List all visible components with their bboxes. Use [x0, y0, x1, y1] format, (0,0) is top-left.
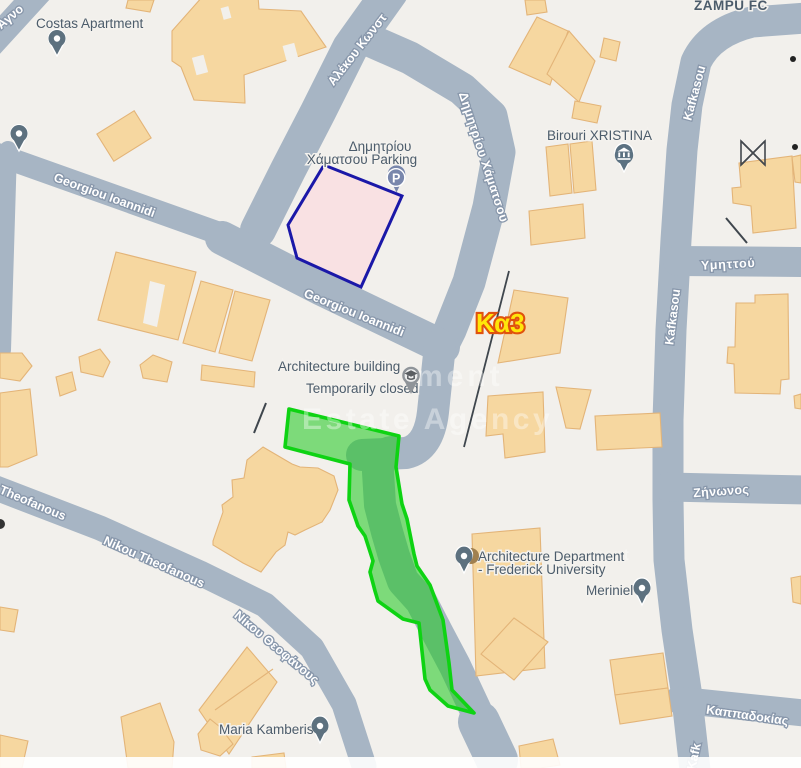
svg-text:ment: ment — [416, 360, 504, 393]
svg-text:ZAMPU FC: ZAMPU FC — [694, 0, 768, 13]
svg-text:Κα3: Κα3 — [476, 308, 525, 338]
svg-text:Architecture building: Architecture building — [278, 359, 400, 374]
svg-text:Estate Agency: Estate Agency — [302, 403, 553, 436]
svg-text:Maria Kamberis: Maria Kamberis — [219, 722, 314, 737]
svg-text:- Frederick University: - Frederick University — [478, 562, 606, 577]
svg-text:Meriniel: Meriniel — [586, 583, 633, 598]
svg-text:Birouri XRISTINA: Birouri XRISTINA — [547, 128, 652, 143]
svg-text:Υμηττού: Υμηττού — [701, 256, 756, 273]
svg-text:Temporarily closed: Temporarily closed — [306, 381, 419, 396]
svg-text:Χάματσου Parking: Χάματσου Parking — [307, 152, 417, 167]
svg-text:P: P — [392, 172, 400, 186]
svg-text:Costas Apartment: Costas Apartment — [36, 16, 144, 31]
